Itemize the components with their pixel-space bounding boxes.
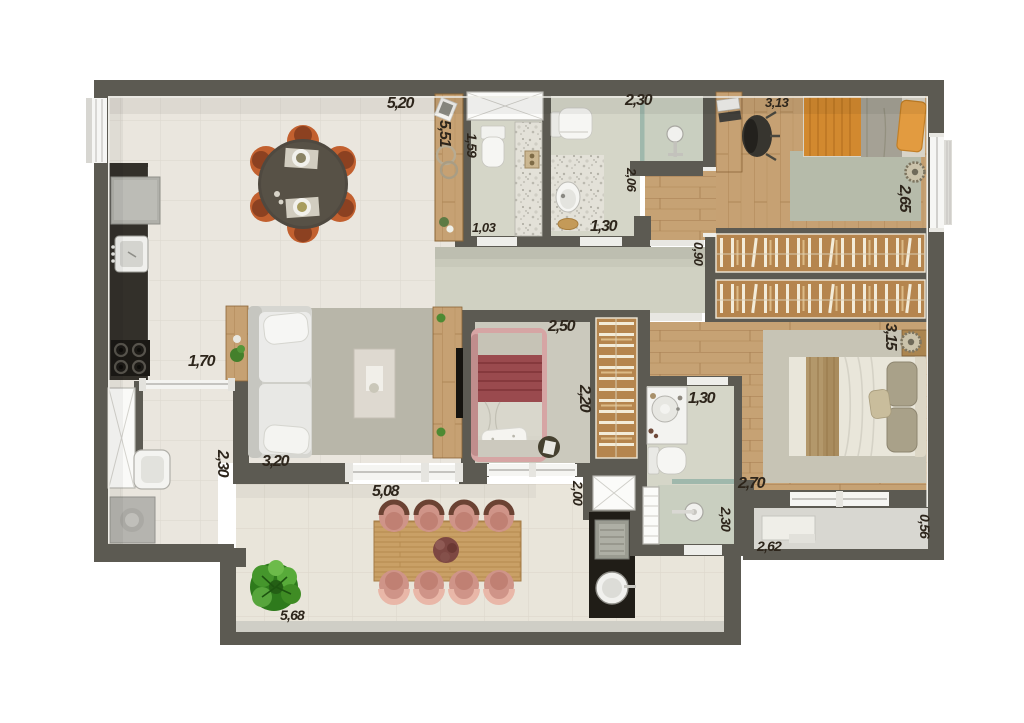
- svg-text:1,30: 1,30: [688, 390, 716, 407]
- svg-text:5,08: 5,08: [372, 483, 400, 500]
- svg-text:1,03: 1,03: [472, 220, 497, 235]
- svg-text:0,56: 0,56: [917, 514, 933, 539]
- svg-text:2,70: 2,70: [737, 475, 766, 492]
- svg-text:5,51: 5,51: [436, 120, 453, 148]
- svg-text:3,20: 3,20: [262, 453, 290, 470]
- svg-text:2,50: 2,50: [547, 318, 576, 335]
- svg-text:1,59: 1,59: [464, 133, 480, 158]
- svg-text:2,62: 2,62: [756, 538, 782, 554]
- svg-text:2,20: 2,20: [576, 384, 593, 413]
- svg-text:1,70: 1,70: [188, 353, 216, 370]
- svg-text:2,30: 2,30: [624, 92, 653, 109]
- svg-text:3,15: 3,15: [882, 323, 899, 352]
- svg-text:5,20: 5,20: [387, 95, 415, 112]
- svg-text:2,06: 2,06: [624, 167, 639, 193]
- svg-text:1,30: 1,30: [590, 218, 618, 235]
- svg-text:0,90: 0,90: [691, 242, 706, 267]
- svg-text:2,00: 2,00: [570, 480, 586, 506]
- svg-text:2,30: 2,30: [718, 506, 734, 532]
- svg-text:2,30: 2,30: [214, 449, 231, 478]
- svg-text:2,65: 2,65: [896, 184, 913, 214]
- svg-text:5,68: 5,68: [280, 607, 305, 623]
- svg-text:3,13: 3,13: [765, 95, 790, 110]
